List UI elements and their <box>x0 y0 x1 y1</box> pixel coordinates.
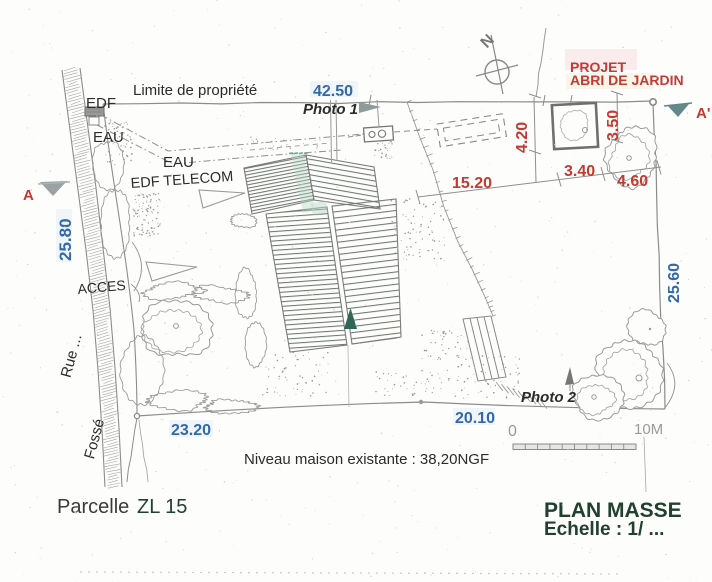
svg-text:A: A <box>23 187 34 204</box>
svg-text:ABRI DE JARDIN: ABRI DE JARDIN <box>570 72 684 88</box>
svg-text:Parcelle: Parcelle <box>57 496 129 518</box>
svg-text:EAU: EAU <box>163 154 194 171</box>
svg-text:EDF: EDF <box>86 95 116 112</box>
svg-text:42.50: 42.50 <box>313 83 353 100</box>
svg-text:10M: 10M <box>634 421 663 438</box>
svg-text:Photo 1: Photo 1 <box>303 101 358 118</box>
svg-text:25.60: 25.60 <box>666 263 683 303</box>
svg-text:15.20: 15.20 <box>452 175 492 192</box>
svg-text:Niveau maison existante : 38,2: Niveau maison existante : 38,20NGF <box>244 451 489 468</box>
svg-text:EAU: EAU <box>93 129 124 146</box>
svg-text:23.20: 23.20 <box>171 422 211 439</box>
svg-text:25.80: 25.80 <box>56 218 75 261</box>
svg-text:Limite de propriété: Limite de propriété <box>133 82 257 99</box>
svg-text:0: 0 <box>508 423 517 440</box>
svg-text:Photo 2: Photo 2 <box>521 389 577 406</box>
svg-text:4.20: 4.20 <box>514 122 531 153</box>
svg-text:Echelle : 1/ ...: Echelle : 1/ ... <box>544 519 664 540</box>
svg-text:3.50: 3.50 <box>605 110 622 141</box>
svg-text:3.40: 3.40 <box>564 163 595 180</box>
svg-text:20.10: 20.10 <box>455 410 495 427</box>
svg-text:A': A' <box>696 105 710 122</box>
svg-text:4.60: 4.60 <box>617 173 648 190</box>
